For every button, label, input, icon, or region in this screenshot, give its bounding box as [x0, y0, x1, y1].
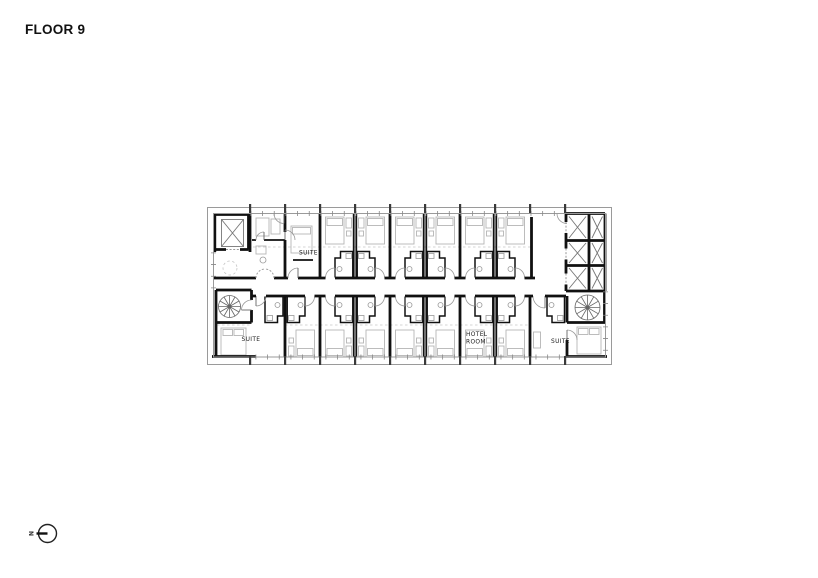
hotel-room-unit: [287, 297, 314, 358]
hotel-room-unit: [396, 297, 423, 358]
hotel-room-unit: [326, 297, 353, 358]
north-letter: N: [29, 531, 36, 536]
floor-plan: SUITE SUITE HOTEL ROOM SUITE N: [0, 0, 818, 578]
label-hotel-room-line1: HOTEL: [466, 332, 488, 338]
hotel-room-unit: [466, 297, 493, 358]
interior-walls: [214, 214, 568, 358]
presentation-page: { "page": { "title": "FLOOR 9", "backgro…: [0, 0, 818, 578]
hotel-room-unit: [427, 297, 454, 358]
label-suite-top-left: SUITE: [299, 251, 318, 257]
hotel-room-unit: [497, 297, 524, 358]
hotel-room-unit: [357, 297, 384, 358]
spiral-stair-left: [219, 296, 241, 318]
label-suite-bottom-left: SUITE: [242, 337, 261, 343]
label-hotel-room-line2: ROOM: [466, 340, 486, 346]
spiral-stair-right: [575, 295, 600, 320]
north-indicator: N: [29, 525, 57, 543]
label-suite-bottom-right: SUITE: [551, 339, 570, 345]
hotel-rooms: [287, 217, 524, 357]
